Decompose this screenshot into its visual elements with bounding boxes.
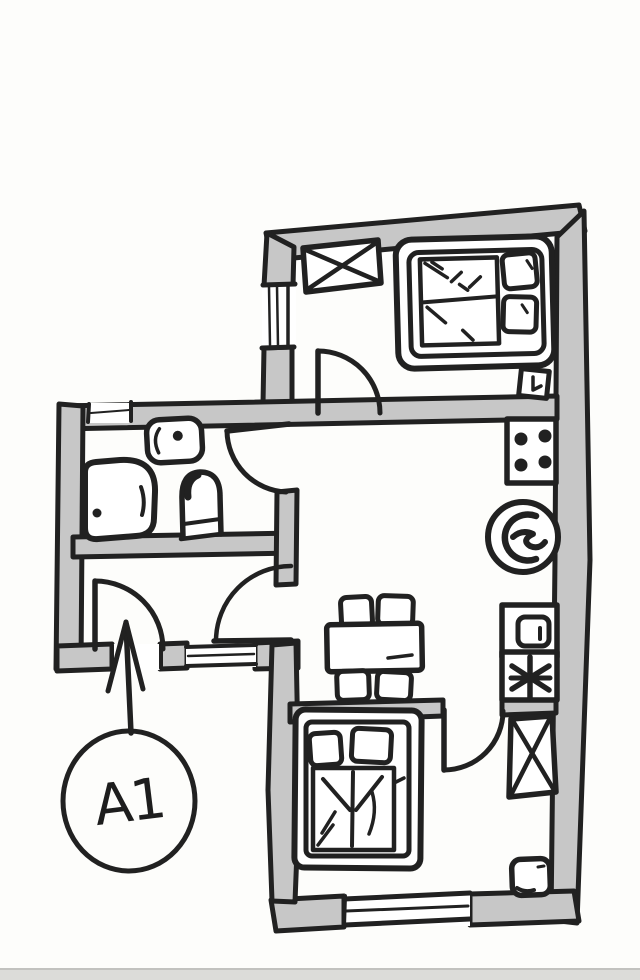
wall-shared-mid [276,490,297,585]
bathtub-icon [85,460,155,539]
wall-panel-icon [519,369,550,399]
bedroom-bottom [294,709,556,895]
wall-main-left-upper-b [263,347,292,404]
window-icon [88,402,132,423]
chair-icon [337,670,370,700]
door-swing-icon [227,424,289,492]
double-bed-icon [395,236,554,369]
bathroom [85,418,289,540]
entrance-arrow-icon [108,622,143,733]
wall-annex-bottom-1 [57,644,112,671]
wall-main-right [551,211,590,923]
window-icon [344,893,470,926]
window-icon [186,645,256,667]
chair-icon [376,671,411,701]
kitchen-living-room [327,419,558,701]
double-bed-icon [294,709,421,868]
freezer-icon [502,652,557,700]
kitchen-sink-icon [488,502,558,572]
bedroom-top [303,236,555,413]
stove-icon [507,419,556,483]
wall-horizontal-band [60,396,557,429]
dining-table-icon [327,595,423,700]
unit-label-text: A1 [91,766,168,839]
washbasin-icon [146,418,203,464]
floor-plan-canvas: A1 [0,0,640,980]
scan-edge-band [0,969,640,980]
floor-plan-sketch: A1 [0,0,640,980]
toilet-icon [181,472,221,539]
nightstand-icon [511,858,550,895]
window-icon [262,284,296,348]
door-swing-icon [444,710,503,770]
wardrobe-icon [509,716,556,797]
wardrobe-icon [303,240,381,292]
oven-icon [502,605,557,657]
